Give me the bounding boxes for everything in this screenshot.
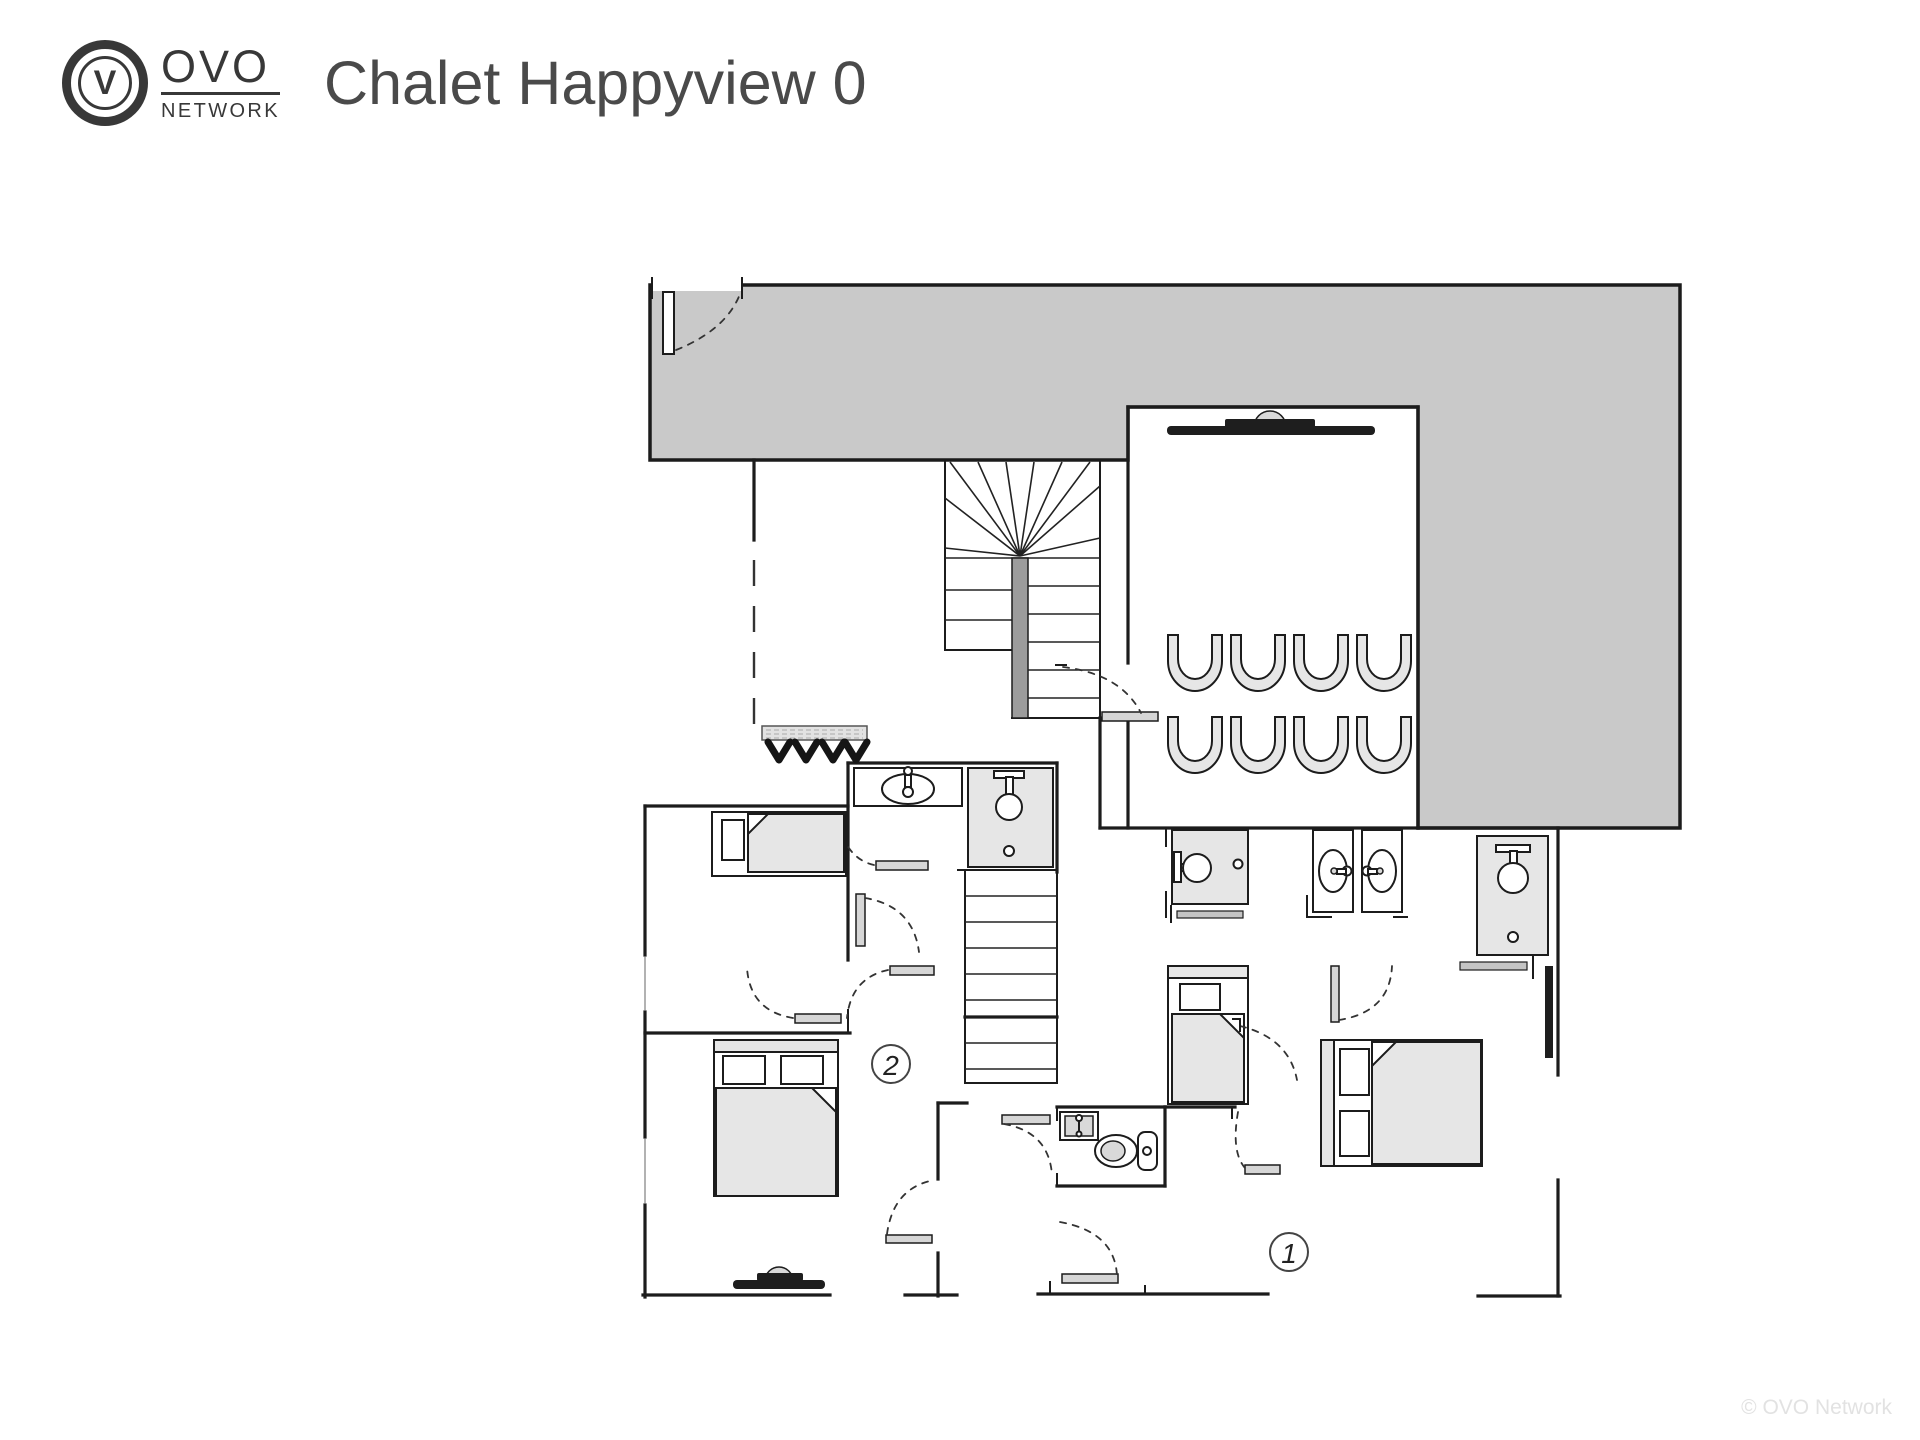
floor-plan-svg: 12 <box>0 0 1920 1440</box>
shower-head <box>996 794 1022 820</box>
hall-door2-leaf <box>1062 1274 1118 1283</box>
window-east <box>1545 966 1553 1058</box>
boot-rack <box>1357 717 1411 773</box>
bedroom2-door2-swing <box>887 1181 930 1234</box>
ensuite-door-swing <box>1339 966 1392 1020</box>
bathroom-door-leaf <box>876 861 928 870</box>
boot-rack <box>1294 717 1348 773</box>
shower-drain <box>1004 846 1014 856</box>
bedroom1-door2-swing <box>1236 1112 1245 1168</box>
copyright-watermark: © OVO Network <box>1741 1396 1892 1420</box>
headboard <box>1321 1040 1334 1166</box>
shower-head <box>1498 863 1528 893</box>
logo-ring-icon: V <box>62 40 148 126</box>
ski-room-door-leaf <box>1102 712 1158 721</box>
toilet-button <box>1143 1147 1151 1155</box>
bedroom2-door2-leaf <box>886 1235 932 1243</box>
page-title: Chalet Happyview 0 <box>324 48 867 118</box>
pillow <box>722 820 744 860</box>
bedroom1-door-leaf <box>1245 1165 1280 1174</box>
wc-door-swing <box>1004 1124 1052 1175</box>
stair-tread <box>1020 486 1100 556</box>
tap <box>1368 869 1377 874</box>
hall-door-leaf <box>890 966 934 975</box>
boot-rack <box>1168 717 1222 773</box>
pillow <box>1340 1049 1369 1095</box>
bedroom3-door-leaf <box>856 894 865 946</box>
terrace <box>650 285 1680 828</box>
coat-hook <box>768 742 790 760</box>
shower-head <box>1174 852 1181 882</box>
coat-hook <box>822 742 844 760</box>
tv-bedroom2 <box>733 1280 825 1289</box>
stair-spine <box>1012 558 1028 718</box>
tap <box>904 767 912 775</box>
headboard <box>1168 966 1248 978</box>
logo-v-letter: V <box>94 66 117 100</box>
boot-rack <box>1231 635 1285 691</box>
boot-rack <box>1168 635 1222 691</box>
coat-hook <box>795 742 817 760</box>
tap <box>905 775 911 787</box>
entrance-door-leaf <box>663 292 674 354</box>
wc-door-leaf <box>1002 1115 1050 1124</box>
boot-rack <box>1357 635 1411 691</box>
toilet-bowl-inner <box>1101 1141 1125 1161</box>
bedroom2-door-swing <box>747 968 793 1018</box>
tv-bracket <box>757 1273 803 1281</box>
towel-rail-2 <box>1460 962 1527 970</box>
tap <box>1331 868 1337 874</box>
coat-hook <box>845 742 867 760</box>
terrace-door-opening <box>652 279 742 291</box>
pillow <box>723 1056 765 1084</box>
hall-door-swing <box>847 970 888 1018</box>
page-header: V OVO NETWORK Chalet Happyview 0 <box>62 40 867 126</box>
ensuite-door-leaf <box>1331 966 1339 1022</box>
headboard <box>714 1040 838 1052</box>
ovo-network-logo: V OVO NETWORK <box>62 40 280 126</box>
bedroom2-door-leaf <box>795 1014 841 1023</box>
boot-rack <box>1294 635 1348 691</box>
room-label-2: 2 <box>882 1050 899 1081</box>
duvet <box>716 1088 836 1196</box>
pillow <box>781 1056 823 1084</box>
shower-head <box>1183 854 1211 882</box>
duvet <box>748 814 844 872</box>
floor-plan-page: 12 V OVO NETWORK Chalet Happyview 0 © OV… <box>0 0 1920 1440</box>
shower-drain <box>1234 860 1243 869</box>
room-label-1: 1 <box>1281 1238 1297 1269</box>
tap <box>1377 868 1383 874</box>
stair-tread <box>945 548 1020 556</box>
tap <box>1337 869 1346 874</box>
tap <box>1077 1132 1082 1137</box>
tv <box>1167 426 1375 435</box>
towel-rail-1 <box>1177 911 1243 918</box>
boot-rack <box>1231 717 1285 773</box>
ski-room-door-swing <box>1063 667 1141 713</box>
logo-ovo-text: OVO <box>161 44 280 95</box>
duvet <box>1372 1042 1481 1164</box>
logo-network-text: NETWORK <box>161 100 280 123</box>
bedroom3-door-swing <box>865 898 919 952</box>
hall-door2-swing <box>1060 1222 1117 1276</box>
logo-inner-ring-icon: V <box>78 56 132 110</box>
shower-drain <box>1508 932 1518 942</box>
pillow <box>1180 984 1220 1010</box>
logo-text: OVO NETWORK <box>161 44 280 123</box>
pillow <box>1340 1111 1369 1156</box>
tap <box>903 787 913 797</box>
